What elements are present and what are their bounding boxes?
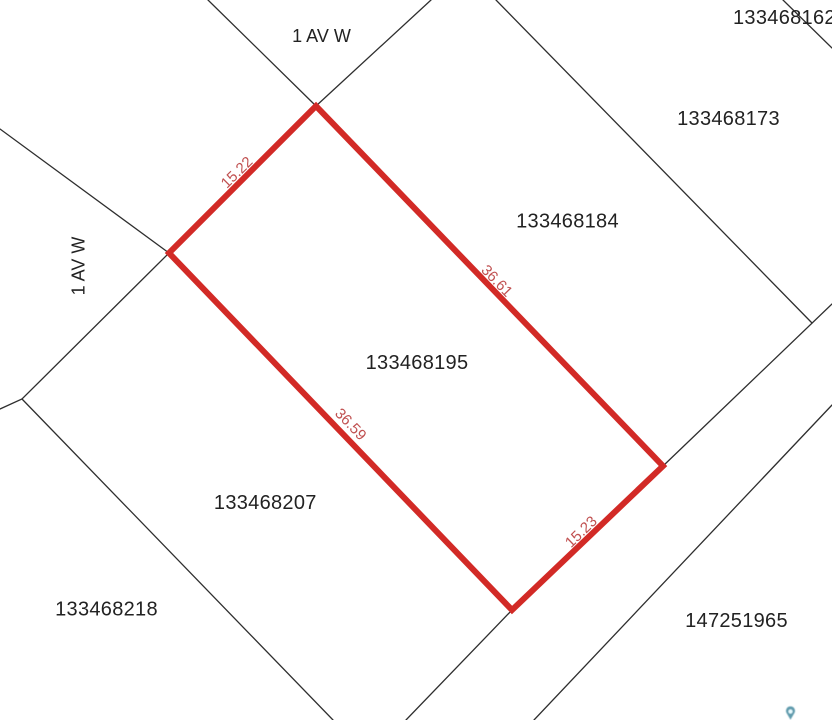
svg-text:133468207: 133468207 [214, 492, 317, 514]
svg-text:133468218: 133468218 [55, 599, 158, 621]
svg-text:133468184: 133468184 [516, 210, 619, 232]
svg-text:133468162: 133468162 [733, 7, 832, 29]
svg-text:1 AV W: 1 AV W [292, 26, 351, 46]
svg-text:147251965: 147251965 [685, 610, 788, 632]
svg-text:1 AV W: 1 AV W [69, 237, 89, 296]
svg-text:133468195: 133468195 [366, 352, 469, 374]
svg-text:133468173: 133468173 [677, 108, 780, 130]
